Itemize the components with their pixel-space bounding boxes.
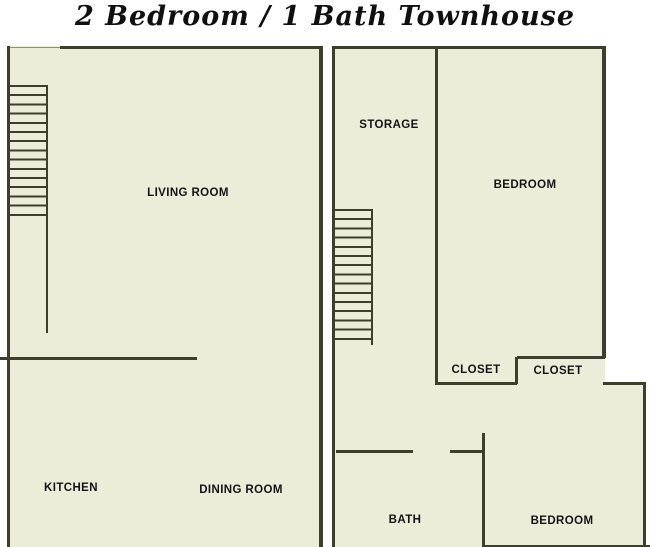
first-floor-right-wall bbox=[319, 46, 323, 547]
room-label-dining-room: DINING ROOM bbox=[199, 484, 283, 496]
annex-notch-wall bbox=[603, 382, 646, 385]
first-floor-staircase bbox=[8, 85, 48, 223]
closet-divider-wall bbox=[515, 357, 518, 384]
second-floor-top-wall bbox=[333, 46, 605, 50]
bath-bedroom-divider-wall bbox=[482, 433, 485, 547]
page-title: 2 Bedroom / 1 Bath Townhouse bbox=[0, 1, 650, 32]
first-floor-area bbox=[8, 46, 322, 547]
room-label-closet-left: CLOSET bbox=[451, 364, 500, 376]
second-floor-right-wall-lower bbox=[643, 383, 646, 547]
second-floor-right-wall-upper bbox=[602, 46, 606, 358]
kitchen-wall bbox=[0, 357, 197, 360]
closet-right-top-wall bbox=[517, 356, 605, 359]
room-label-living-room: LIVING ROOM bbox=[147, 187, 229, 199]
bath-top-wall-left-segment bbox=[336, 450, 413, 453]
room-label-closet-right: CLOSET bbox=[533, 365, 582, 377]
second-floor-annex-area bbox=[605, 383, 646, 547]
second-floor-staircase bbox=[334, 209, 373, 345]
room-label-storage: STORAGE bbox=[359, 119, 418, 131]
staircase-side-wall bbox=[46, 220, 48, 333]
closet-left-bottom-wall bbox=[435, 382, 517, 385]
room-label-bedroom-bottom: BEDROOM bbox=[531, 515, 594, 527]
room-label-kitchen: KITCHEN bbox=[44, 482, 98, 494]
bath-top-wall-right-segment bbox=[450, 450, 484, 453]
floor-plan-canvas: 2 Bedroom / 1 Bath Townhouse LIVING ROOM… bbox=[0, 0, 650, 547]
first-floor-top-wall bbox=[60, 46, 322, 50]
first-floor-top-wall-thin bbox=[8, 47, 64, 49]
room-label-bedroom-top: BEDROOM bbox=[494, 179, 557, 191]
storage-bedroom-divider-wall bbox=[435, 47, 438, 384]
room-label-bath: BATH bbox=[389, 514, 422, 526]
